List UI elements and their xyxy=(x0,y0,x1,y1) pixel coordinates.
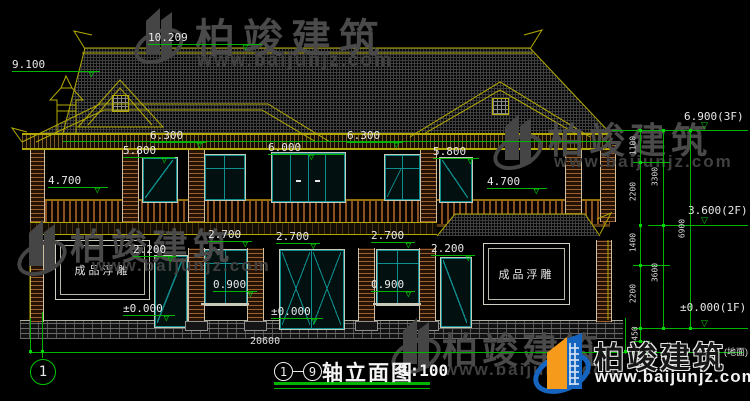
dim-node xyxy=(639,264,642,267)
logo-building-blue xyxy=(567,333,582,389)
level-text: 2.200 xyxy=(431,242,464,255)
dim-seg-1100: 1100 xyxy=(629,132,638,160)
title-axis-end-circle: 9 xyxy=(303,362,322,381)
dim-sub-3600: 3600 xyxy=(651,259,660,287)
level-mark-door2f-left: 5.800 xyxy=(123,145,175,158)
dim-node xyxy=(639,161,642,164)
level-mark-chimney: 9.100 xyxy=(12,59,100,72)
logo-window-dots xyxy=(569,343,579,385)
level-triangle-icon xyxy=(406,242,411,251)
level-triangle-icon xyxy=(168,256,173,265)
watermark-building-shape xyxy=(44,224,55,270)
dim-chain-line xyxy=(663,130,664,328)
level-triangle-icon xyxy=(312,318,317,327)
level-text: 6.900(3F) xyxy=(684,110,744,123)
title-underline-thin xyxy=(274,388,430,389)
watermark-building-shape xyxy=(505,114,519,160)
level-triangle-icon xyxy=(89,71,94,80)
level-triangle-icon xyxy=(534,188,539,197)
dim-seg-2200-lower: 2200 xyxy=(629,280,638,308)
dim-node xyxy=(29,350,32,353)
level-triangle-icon xyxy=(701,216,708,225)
level-text: 9.100 xyxy=(12,58,45,71)
dim-node xyxy=(662,224,665,227)
level-mark-2f: 3.600(2F) xyxy=(688,205,748,217)
level-mark-balcony-left: 4.700 xyxy=(48,175,108,188)
level-text: 2.700 xyxy=(371,229,404,242)
dim-node xyxy=(662,129,665,132)
dim-chain-line xyxy=(690,130,691,328)
level-text: 10.209 xyxy=(148,31,188,44)
level-triangle-icon xyxy=(162,157,167,166)
brand-logo: 柏竣建筑 www.baijunjz.com xyxy=(532,330,750,401)
level-text: ±0.000 xyxy=(123,302,163,315)
level-text: 5.800 xyxy=(433,145,466,158)
axis-number: 1 xyxy=(39,364,47,380)
dim-sub-3300: 3300 xyxy=(651,163,660,191)
axis-start-number: 1 xyxy=(280,365,287,379)
dim-node xyxy=(639,224,642,227)
level-triangle-icon xyxy=(197,142,202,151)
level-mark-3f: 6.900(3F) xyxy=(684,111,744,123)
cad-elevation-drawing: 成品浮雕 成品浮雕 柏竣建筑 www.baijunjz.com 柏竣建筑 www… xyxy=(0,0,750,401)
dim-total-6900: 6900 xyxy=(678,215,687,243)
level-text: 6.000 xyxy=(268,141,301,154)
level-mark-sill-left: 0.900 xyxy=(213,279,257,292)
dim-node xyxy=(639,129,642,132)
level-mark-win1f-c: 2.700 xyxy=(371,230,415,243)
level-triangle-icon xyxy=(309,154,314,163)
level-text: ±0.000(1F) xyxy=(680,301,746,314)
level-triangle-icon xyxy=(95,187,100,196)
overall-width-dim: 20600 xyxy=(250,336,280,347)
level-triangle-icon xyxy=(394,142,399,151)
ground-note: (地面) xyxy=(724,345,748,358)
level-mark-balcony-door: 6.000 xyxy=(268,142,344,155)
watermark-building-shape xyxy=(29,220,43,266)
level-text: 3.600(2F) xyxy=(688,204,748,217)
level-mark-door1f-left: 2.200 xyxy=(133,244,177,257)
logo-site-text: www.baijunjz.com xyxy=(595,367,750,387)
level-text: 2.700 xyxy=(208,228,241,241)
dim-seg-1400: 1400 xyxy=(629,229,638,257)
level-mark-door1f-right: 2.200 xyxy=(431,243,475,256)
level-triangle-icon xyxy=(164,315,169,324)
level-text: 2.700 xyxy=(276,230,309,243)
dim-seg-2200-upper: 2200 xyxy=(629,178,638,206)
dim-node xyxy=(689,129,692,132)
level-mark-sill-right: 0.900 xyxy=(371,279,415,292)
drawing-scale: 1:100 xyxy=(400,361,448,380)
level-mark-win1f-a: 2.700 xyxy=(208,229,252,242)
logo-building-orange xyxy=(547,337,567,389)
watermark-logo-icon xyxy=(16,218,68,276)
level-triangle-icon xyxy=(701,121,708,130)
level-text: 4.700 xyxy=(487,175,520,188)
dim-node xyxy=(41,350,44,353)
level-text: 2.200 xyxy=(133,243,166,256)
level-mark-ground-center: ±0.000 xyxy=(271,306,323,319)
level-text: 4.700 xyxy=(48,174,81,187)
level-triangle-icon xyxy=(248,291,253,300)
level-mark-ridge: 10.209 xyxy=(148,32,262,45)
level-text: 6.300 xyxy=(150,129,183,142)
level-triangle-icon xyxy=(466,255,471,264)
level-triangle-icon xyxy=(243,44,248,53)
level-mark-win1f-b: 2.700 xyxy=(276,231,320,244)
level-triangle-icon xyxy=(701,319,708,328)
level-triangle-icon xyxy=(311,243,316,252)
level-mark-ground-left: ±0.000 xyxy=(123,303,175,316)
watermark-site-text: www.baijunjz.com xyxy=(92,256,271,276)
level-text: 5.800 xyxy=(123,144,156,157)
axis-bubble-1: 1 xyxy=(30,359,56,385)
level-triangle-icon xyxy=(468,158,473,167)
level-mark-eave-left: 6.300 xyxy=(150,130,206,143)
level-mark-eave-right: 6.300 xyxy=(347,130,403,143)
level-text: ±0.000 xyxy=(271,305,311,318)
level-mark-balcony-right: 4.700 xyxy=(487,176,547,189)
level-mark-door2f-right: 5.800 xyxy=(433,146,479,159)
level-text: 6.300 xyxy=(347,129,380,142)
level-mark-1f: ±0.000(1F) xyxy=(680,302,746,314)
level-text: 0.900 xyxy=(371,278,404,291)
level-text: 0.900 xyxy=(213,278,246,291)
dim-extension-line xyxy=(30,318,31,354)
level-triangle-icon xyxy=(406,291,411,300)
level-triangle-icon xyxy=(243,241,248,250)
axis-end-number: 9 xyxy=(309,365,316,379)
watermark-site-text: www.baijunjz.com xyxy=(197,50,393,72)
